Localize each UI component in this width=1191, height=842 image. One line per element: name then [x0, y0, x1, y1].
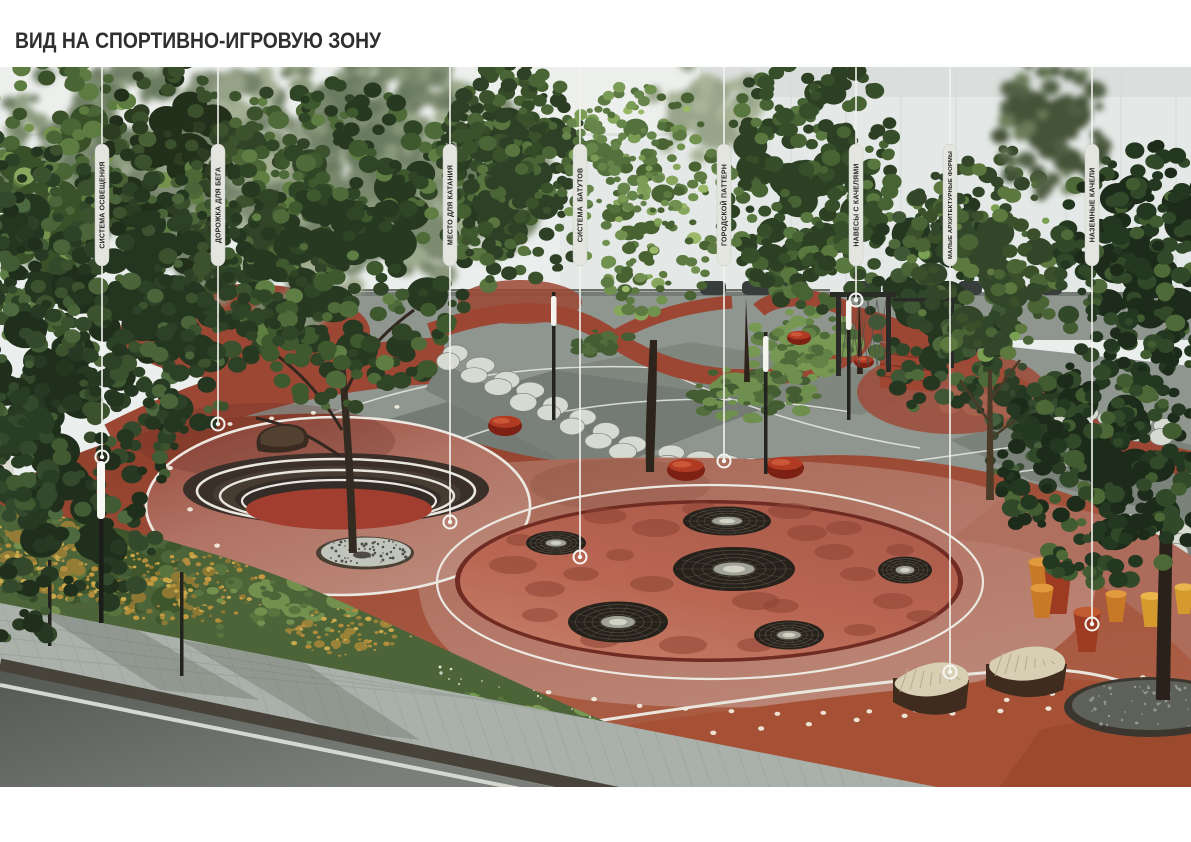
svg-text:ВИД НА СПОРТИВНО-ИГРОВУЮ ЗОНУ: ВИД НА СПОРТИВНО-ИГРОВУЮ ЗОНУ: [15, 28, 381, 53]
